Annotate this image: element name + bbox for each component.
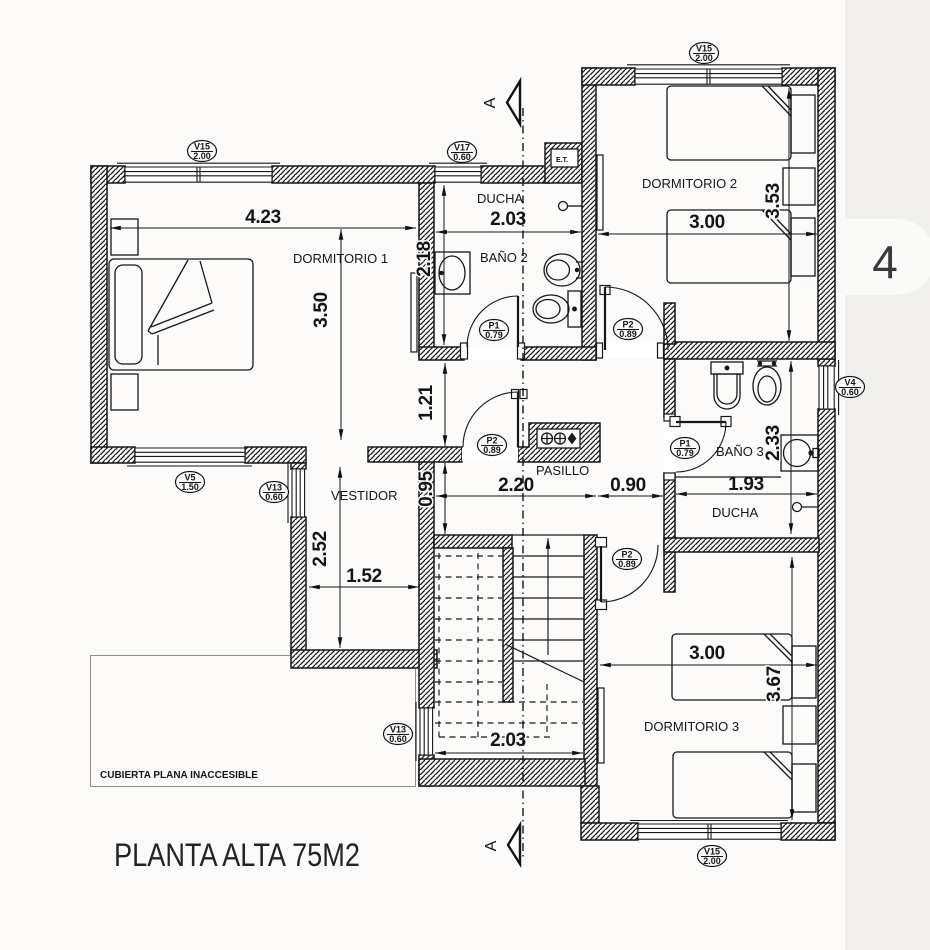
svg-text:4.23: 4.23	[245, 207, 281, 228]
svg-text:3.53: 3.53	[763, 183, 784, 219]
svg-text:1.21: 1.21	[416, 384, 437, 421]
svg-text:DUCHA: DUCHA	[477, 191, 524, 206]
svg-text:V5: V5	[184, 473, 195, 483]
svg-text:4: 4	[872, 236, 898, 288]
svg-text:0.60: 0.60	[389, 734, 407, 744]
svg-text:P2: P2	[622, 320, 633, 330]
svg-text:DUCHA: DUCHA	[712, 505, 759, 520]
svg-text:2.00: 2.00	[193, 151, 211, 161]
svg-text:0.89: 0.89	[483, 445, 501, 455]
svg-text:V15: V15	[194, 142, 210, 152]
svg-text:0.95: 0.95	[416, 470, 437, 507]
svg-text:E.T.: E.T.	[556, 157, 568, 164]
svg-text:2.20: 2.20	[498, 475, 534, 496]
svg-text:0.89: 0.89	[619, 329, 637, 339]
svg-text:2.03: 2.03	[490, 209, 526, 230]
svg-text:0.60: 0.60	[841, 387, 859, 397]
svg-text:V17: V17	[454, 143, 470, 153]
svg-text:2.52: 2.52	[310, 531, 331, 567]
svg-text:V13: V13	[390, 725, 406, 735]
svg-text:DORMITORIO 2: DORMITORIO 2	[642, 176, 737, 191]
svg-text:2.00: 2.00	[695, 53, 713, 63]
svg-text:P1: P1	[488, 321, 499, 331]
svg-text:0.90: 0.90	[610, 475, 646, 496]
svg-text:V15: V15	[696, 44, 712, 54]
svg-text:VESTIDOR: VESTIDOR	[331, 488, 397, 503]
svg-text:2.18: 2.18	[414, 241, 435, 277]
svg-text:2.00: 2.00	[703, 856, 721, 866]
svg-text:A: A	[482, 97, 499, 108]
svg-text:A: A	[483, 840, 500, 851]
svg-text:V15: V15	[704, 847, 720, 857]
svg-text:0.60: 0.60	[453, 152, 471, 162]
svg-text:V4: V4	[844, 378, 855, 388]
svg-text:PLANTA ALTA 75M2: PLANTA ALTA 75M2	[114, 837, 360, 873]
svg-text:0.79: 0.79	[676, 448, 694, 458]
svg-text:DORMITORIO 3: DORMITORIO 3	[644, 719, 739, 734]
svg-text:2.03: 2.03	[490, 730, 526, 751]
svg-text:1.93: 1.93	[728, 474, 764, 495]
svg-text:1.50: 1.50	[181, 482, 199, 492]
svg-text:P2: P2	[621, 550, 632, 560]
svg-text:DORMITORIO 1: DORMITORIO 1	[293, 251, 388, 266]
svg-text:3.50: 3.50	[311, 292, 332, 328]
svg-text:V13: V13	[266, 483, 282, 493]
svg-text:3.00: 3.00	[689, 643, 725, 664]
svg-text:0.79: 0.79	[485, 330, 503, 340]
svg-text:PASILLO: PASILLO	[536, 463, 589, 478]
svg-text:3.67: 3.67	[764, 666, 785, 702]
svg-text:BAÑO 2: BAÑO 2	[480, 250, 528, 265]
svg-text:CUBIERTA PLANA INACCESIBLE: CUBIERTA PLANA INACCESIBLE	[100, 770, 258, 781]
svg-text:BAÑO 3: BAÑO 3	[716, 444, 764, 459]
svg-text:3.00: 3.00	[689, 212, 725, 233]
svg-text:P2: P2	[486, 436, 497, 446]
svg-text:P1: P1	[679, 439, 690, 449]
svg-text:2.33: 2.33	[763, 425, 784, 461]
svg-text:1.52: 1.52	[346, 566, 382, 587]
svg-text:0.60: 0.60	[265, 492, 283, 502]
svg-text:0.89: 0.89	[618, 559, 636, 569]
